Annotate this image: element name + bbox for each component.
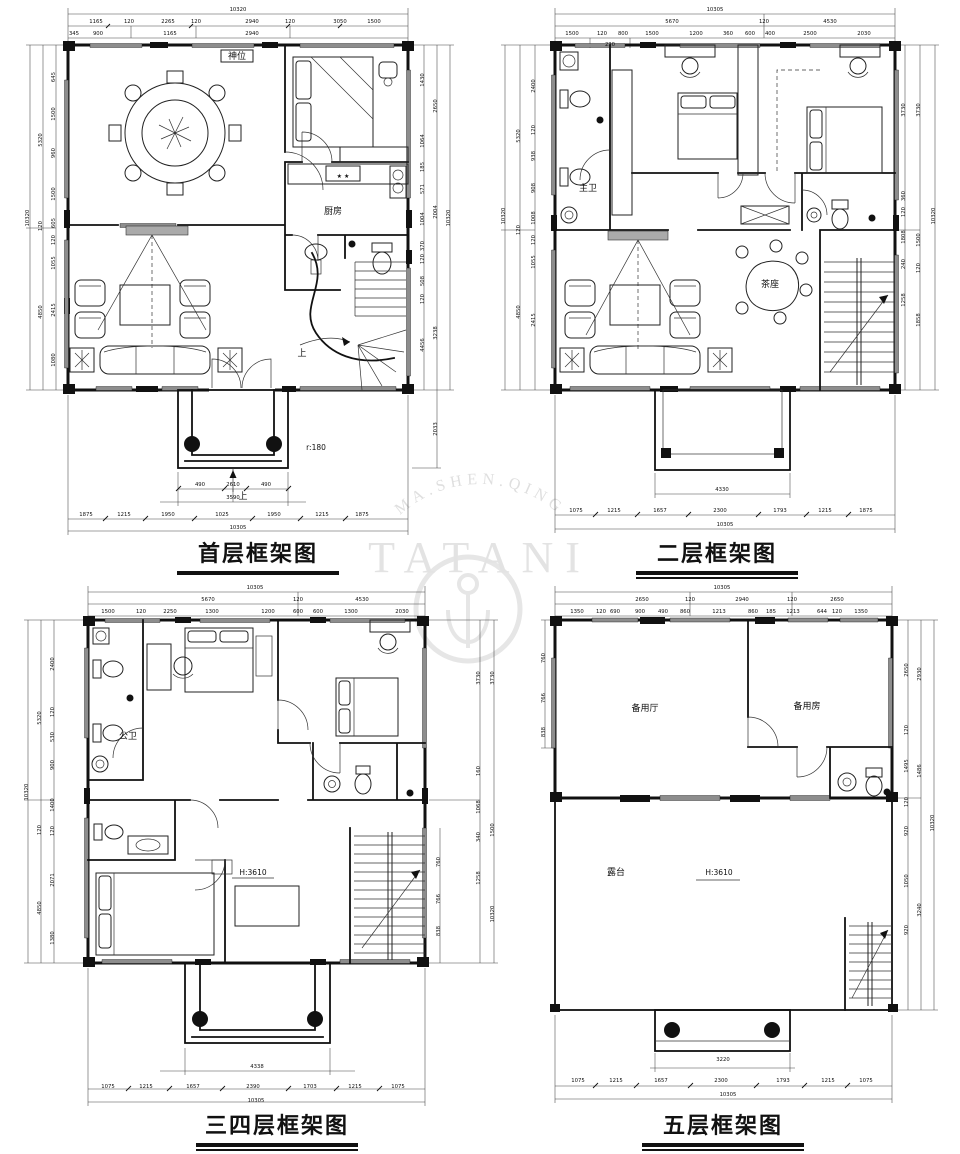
office-chair xyxy=(174,657,192,675)
dimension-label: 3050 xyxy=(333,19,347,25)
porch xyxy=(655,390,790,470)
plan-fifth-floor-svg: 1030526501202940120265013501206909004908… xyxy=(500,578,960,1154)
dimension-label: 2030 xyxy=(395,609,409,615)
room-label: 备用房 xyxy=(793,700,820,711)
kitchen xyxy=(288,164,408,198)
dimension-label: 160 xyxy=(476,765,482,776)
dimension-lines xyxy=(541,586,938,1103)
tv-console xyxy=(126,226,188,235)
plan2-labels: 1030556701204530150012080015001200360600… xyxy=(501,7,937,528)
dimension-label: 2650 xyxy=(904,663,910,677)
plan-title-first-floor: 首层框架图 xyxy=(163,536,353,575)
spiral-staircase xyxy=(300,253,406,390)
dimension-label: 120 xyxy=(901,206,907,217)
dimension-label: 120 xyxy=(285,19,296,25)
dimension-label: 120 xyxy=(596,609,607,615)
dimension-label: 360 xyxy=(901,190,907,201)
dimension-label: 490 xyxy=(261,482,272,488)
dimension-label: 120 xyxy=(293,597,304,603)
dimension-label: 120 xyxy=(832,609,843,615)
dimension-label: 644 xyxy=(817,609,828,615)
dimension-label: 900 xyxy=(93,31,104,37)
wardrobe-hatch xyxy=(612,70,632,215)
outer-walls xyxy=(555,45,895,390)
dimension-lines xyxy=(24,586,498,1106)
room-label: 露台 xyxy=(607,866,625,877)
dimension-label: 120 xyxy=(420,293,426,304)
wardrobe-hatch xyxy=(738,45,758,175)
dimension-label: 120 xyxy=(916,262,922,273)
dimension-label: 860 xyxy=(680,609,691,615)
dimension-label: 1350 xyxy=(854,609,868,615)
bedroom-2 xyxy=(777,45,882,173)
dimension-label: 400 xyxy=(765,31,776,37)
door-arcs xyxy=(580,150,827,215)
plan-title-text: 二层框架图 xyxy=(657,541,777,566)
dimension-label: 1258 xyxy=(901,293,907,307)
room-label: 主卫 xyxy=(579,182,597,193)
dimension-label: 10305 xyxy=(717,522,734,528)
plan-second-floor: 1030556701204530150012080015001200360600… xyxy=(480,0,960,560)
dimension-label: 605 xyxy=(51,218,57,228)
dimension-label: 1165 xyxy=(163,31,176,37)
dimension-label: 1075 xyxy=(569,508,582,514)
dimension-label: 120 xyxy=(516,224,522,235)
dimension-label: 4850 xyxy=(37,901,43,915)
dimension-lines xyxy=(26,8,454,535)
dimension-label: 1380 xyxy=(50,931,56,945)
dimension-label: 120 xyxy=(124,19,135,25)
porch xyxy=(185,963,330,1043)
desk xyxy=(147,644,171,690)
dimension-label: 766 xyxy=(541,692,547,703)
dimension-label: 2265 xyxy=(161,19,174,25)
dimension-label: 120 xyxy=(531,124,537,135)
dimension-label: 1068 xyxy=(476,800,482,814)
dimension-label: 1500 xyxy=(645,31,659,37)
dimension-label: 345 xyxy=(69,31,79,37)
bedroom xyxy=(293,57,397,147)
bathroom-mid xyxy=(324,766,414,797)
dimension-label: 3238 xyxy=(433,326,439,340)
dimension-label: 120 xyxy=(37,824,43,835)
dimension-label: 4338 xyxy=(250,1064,264,1070)
dimension-label: 1213 xyxy=(712,609,725,615)
dimension-label: 3220 xyxy=(716,1057,730,1063)
dimension-label: 760 xyxy=(436,856,442,867)
dimension-label: 1500 xyxy=(565,31,579,37)
dimension-label: 2033 xyxy=(433,422,439,435)
room-label: H:3610 xyxy=(705,868,732,877)
dimension-label: 1025 xyxy=(215,512,228,518)
dimension-label: 1486 xyxy=(917,764,923,778)
master-bathroom xyxy=(560,52,604,223)
dimension-label: 2030 xyxy=(857,31,871,37)
dimension-label: 240 xyxy=(901,258,907,269)
dimension-label: 1875 xyxy=(79,512,92,518)
room-label: H:3610 xyxy=(239,868,266,877)
plan-second-floor-svg: 1030556701204530150012080015001200360600… xyxy=(480,0,960,560)
dimension-label: 10320 xyxy=(930,814,936,831)
dimension-label: 1657 xyxy=(186,1084,199,1090)
dimension-label: 10305 xyxy=(714,585,731,591)
dimension-label: 690 xyxy=(610,609,621,615)
dimension-label: 10320 xyxy=(490,905,496,922)
dimension-label: 10320 xyxy=(931,207,937,224)
outer-walls xyxy=(88,620,425,963)
plan-fifth-floor: 1030526501202940120265013501206909004908… xyxy=(500,578,960,1154)
dimension-label: 1300 xyxy=(205,609,219,615)
dimension-label: 3240 xyxy=(917,903,923,917)
dimension-label: 120 xyxy=(787,597,798,603)
plan-third-fourth-floor-svg: 1030556701204530150012022501300120060060… xyxy=(10,578,500,1154)
dimension-label: 1500 xyxy=(367,19,381,25)
dimension-label: 760 xyxy=(541,652,547,663)
dimension-label: 2650 xyxy=(830,597,844,603)
dimension-label: 1075 xyxy=(571,1078,584,1084)
dimension-label: 120 xyxy=(136,609,147,615)
dimension-label: 1350 xyxy=(570,609,584,615)
dimension-label: 1950 xyxy=(161,512,175,518)
dimension-label: 2940 xyxy=(245,19,259,25)
door-arcs xyxy=(113,700,340,890)
wardrobe-hatch xyxy=(340,147,408,162)
dimension-label: 1793 xyxy=(773,508,786,514)
dimension-label: 1500 xyxy=(51,187,57,201)
dimension-label: 1055 xyxy=(51,256,57,269)
dimension-label: 600 xyxy=(293,609,304,615)
dimension-label: 900 xyxy=(635,609,646,615)
room-label: ★ ★ xyxy=(337,173,350,180)
dimension-label: 185 xyxy=(420,162,426,172)
dimension-label: 120 xyxy=(420,253,426,264)
interior-walls xyxy=(555,45,895,390)
plan-first-floor-svg: 1032011651202265120294012030501500345900… xyxy=(0,0,480,560)
staircase xyxy=(845,918,892,1010)
dimension-label: 1657 xyxy=(654,1078,667,1084)
dimension-label: 1200 xyxy=(689,31,703,37)
dimension-label: 2930 xyxy=(917,667,923,681)
dimension-label: 1004 xyxy=(420,212,426,226)
dimension-label: 1215 xyxy=(821,1078,834,1084)
dimension-label: 2071 xyxy=(50,873,56,886)
dimension-label: 4530 xyxy=(355,597,369,603)
dimension-label: 571 xyxy=(420,184,426,194)
plan-title-text: 五层框架图 xyxy=(663,1113,783,1138)
dimension-label: 4330 xyxy=(715,487,729,493)
dimension-label: 1055 xyxy=(531,255,537,268)
dimension-label: 120 xyxy=(597,31,608,37)
dimension-label: 185 xyxy=(766,609,776,615)
room-label: 茶座 xyxy=(761,278,779,289)
dimension-label: 908 xyxy=(531,182,537,193)
dimension-label: 1075 xyxy=(101,1084,114,1090)
dimension-label: 10305 xyxy=(720,1092,737,1098)
dimension-label: 3730 xyxy=(490,671,496,685)
dimension-label: 5320 xyxy=(37,711,43,725)
dimension-label: 1200 xyxy=(261,609,275,615)
plan-first-floor: 1032011651202265120294012030501500345900… xyxy=(0,0,480,560)
bedroom-middle xyxy=(185,628,272,692)
dimension-label: 1215 xyxy=(818,508,831,514)
room-label: r:180 xyxy=(306,443,326,452)
dimension-label: 1213 xyxy=(786,609,799,615)
dimension-label: 1500 xyxy=(916,233,922,247)
furniture-small xyxy=(212,860,232,874)
dimension-label: 120 xyxy=(50,825,56,836)
dimension-label: 2940 xyxy=(735,597,749,603)
dimension-label: 120 xyxy=(904,724,910,735)
dimension-label: 120 xyxy=(51,234,57,245)
dimension-label: 2400 xyxy=(531,79,537,93)
dimension-label: 800 xyxy=(618,31,629,37)
plan4-labels: 1030526501202940120265013501206909004908… xyxy=(541,585,936,1098)
furniture-block xyxy=(235,886,299,926)
plan-third-fourth-floor: 1030556701204530150012022501300120060060… xyxy=(10,578,500,1154)
dimension-label: 1400 xyxy=(50,798,56,812)
plan-title-text: 三四层框架图 xyxy=(205,1113,349,1138)
dimension-label: 230 xyxy=(605,42,616,48)
dimension-label: 490 xyxy=(195,482,206,488)
dimension-label: 1215 xyxy=(315,512,328,518)
dimension-label: 645 xyxy=(51,72,57,82)
dimension-label: 2650 xyxy=(635,597,649,603)
dimension-label: 3730 xyxy=(916,103,922,117)
dimension-label: 1430 xyxy=(420,73,426,87)
dimension-label: 4850 xyxy=(516,305,522,319)
tv-console xyxy=(608,231,668,240)
dimension-label: 1950 xyxy=(267,512,281,518)
dimension-label: 508 xyxy=(420,275,426,286)
dimension-label: 10305 xyxy=(247,585,264,591)
dimension-label: 5320 xyxy=(516,129,522,143)
plan-title-second-floor: 二层框架图 xyxy=(622,536,812,579)
interior-walls xyxy=(68,45,408,290)
dimension-label: 1050 xyxy=(904,874,910,888)
dimension-label: 1500 xyxy=(490,823,496,837)
staircase xyxy=(824,258,895,385)
sofa-group xyxy=(560,280,732,374)
dimension-label: 1008 xyxy=(531,211,537,225)
dimension-label: 1495 xyxy=(904,759,910,772)
dimension-label: 5320 xyxy=(38,133,44,147)
dimension-label: 2940 xyxy=(245,31,259,37)
terrace-walls xyxy=(555,798,892,1010)
dimension-label: 5670 xyxy=(665,19,679,25)
dimension-label: 10320 xyxy=(230,7,247,13)
dimension-label: 120 xyxy=(38,220,44,231)
porch xyxy=(655,1010,790,1051)
room-label: 上 xyxy=(238,491,247,501)
bedroom-bottom-left xyxy=(96,873,214,955)
dimension-label: 1258 xyxy=(476,871,482,885)
dimension-label: 1657 xyxy=(653,508,666,514)
dimension-label: 2300 xyxy=(714,1078,728,1084)
staircase xyxy=(354,832,425,960)
dimension-label: 1165 xyxy=(89,19,102,25)
dimension-label: 1215 xyxy=(117,512,130,518)
dimension-label: 2415 xyxy=(531,313,537,326)
dining-table xyxy=(109,71,241,195)
dimension-label: 10305 xyxy=(230,525,247,531)
bedroom-1 xyxy=(665,45,737,159)
dimension-label: 4456 xyxy=(420,338,426,352)
outer-walls xyxy=(68,45,408,390)
dimension-label: 4530 xyxy=(823,19,837,25)
dimension-label: 490 xyxy=(658,609,669,615)
dimension-label: 1075 xyxy=(391,1084,404,1090)
dimension-label: 3730 xyxy=(901,103,907,117)
dimension-label: 1875 xyxy=(355,512,368,518)
sofa-group xyxy=(70,280,242,374)
dimension-label: 10305 xyxy=(707,7,724,13)
dimension-label: 3730 xyxy=(476,671,482,685)
dimension-label: 2415 xyxy=(51,303,57,316)
interior-walls xyxy=(88,620,425,963)
outer-walls-rooms xyxy=(555,620,892,798)
dimension-label: 1080 xyxy=(51,353,57,367)
dimension-label: 766 xyxy=(436,893,442,904)
bathroom-bottom-left xyxy=(94,824,168,854)
dimension-label: 938 xyxy=(531,150,537,161)
dimension-label: 10320 xyxy=(501,207,507,224)
small-bathroom xyxy=(807,200,876,229)
plan-title-fifth-floor: 五层框架图 xyxy=(628,1108,818,1151)
dimension-label: 1075 xyxy=(859,1078,872,1084)
dimension-label: 2390 xyxy=(246,1084,260,1090)
room-label: 神位 xyxy=(228,50,246,61)
dimension-label: 1858 xyxy=(916,313,922,327)
dimension-label: 900 xyxy=(50,759,56,770)
dimension-label: 2004 xyxy=(433,205,439,219)
plan-title-text: 首层框架图 xyxy=(198,541,318,566)
dimension-label: 1793 xyxy=(776,1078,789,1084)
porch xyxy=(178,390,288,492)
dimension-label: 860 xyxy=(748,609,759,615)
dimension-label: 920 xyxy=(904,924,910,935)
public-bathroom xyxy=(92,628,134,772)
plan-title-third-fourth-floor: 三四层框架图 xyxy=(182,1108,372,1151)
dimension-label: 120 xyxy=(191,19,202,25)
dimension-label: 120 xyxy=(759,19,770,25)
room-label: 上 xyxy=(297,348,306,358)
architectural-drawing-sheet: MA.SHEN.QING TATANI xyxy=(0,0,960,1154)
dimension-label: 1808 xyxy=(901,230,907,244)
dimension-label: 120 xyxy=(904,796,910,807)
dimension-label: 1215 xyxy=(609,1078,622,1084)
dimension-label: 4850 xyxy=(38,305,44,319)
dimension-label: 1300 xyxy=(344,609,358,615)
dimension-label: 5670 xyxy=(201,597,215,603)
dimension-label: 2500 xyxy=(803,31,817,37)
dimension-label: 2300 xyxy=(713,508,727,514)
room-label: 厨房 xyxy=(324,205,342,216)
room-label: 公卫 xyxy=(119,731,137,741)
dimension-label: 838 xyxy=(541,726,547,737)
dimension-label: 960 xyxy=(51,147,57,158)
dimension-label: 120 xyxy=(531,234,537,245)
dimension-label: 600 xyxy=(313,609,324,615)
bedroom-right xyxy=(336,620,410,736)
dimension-label: 1875 xyxy=(859,508,872,514)
dimension-label: 120 xyxy=(685,597,696,603)
dimension-label: 2250 xyxy=(163,609,177,615)
bathroom xyxy=(838,768,891,796)
dimension-label: 360 xyxy=(723,31,734,37)
dimension-label: 1064 xyxy=(420,134,426,148)
plan1-labels: 1032011651202265120294012030501500345900… xyxy=(25,7,452,531)
dimension-label: 120 xyxy=(50,706,56,717)
dimension-label: 10320 xyxy=(446,209,452,226)
dimension-label: 1215 xyxy=(348,1084,361,1090)
dimension-label: 2610 xyxy=(226,482,240,488)
room-label: 备用厅 xyxy=(631,702,658,713)
dimension-label: 920 xyxy=(904,825,910,836)
dimension-label: 340 xyxy=(476,831,482,842)
dimension-label: 370 xyxy=(420,240,426,251)
dimension-label: 10320 xyxy=(25,209,31,226)
dimension-label: 530 xyxy=(50,731,56,742)
dimension-label: 1703 xyxy=(303,1084,316,1090)
dimension-label: 1500 xyxy=(101,609,115,615)
dimension-label: 1500 xyxy=(51,107,57,121)
dimension-label: 1215 xyxy=(139,1084,152,1090)
dimension-label: 1215 xyxy=(607,508,620,514)
dimension-label: 10305 xyxy=(248,1098,265,1104)
dimension-label: 10320 xyxy=(24,783,30,800)
dimension-label: 2400 xyxy=(50,657,56,671)
dimension-label: 2650 xyxy=(433,99,439,113)
dimension-label: 600 xyxy=(745,31,756,37)
dimension-label: 838 xyxy=(436,925,442,936)
